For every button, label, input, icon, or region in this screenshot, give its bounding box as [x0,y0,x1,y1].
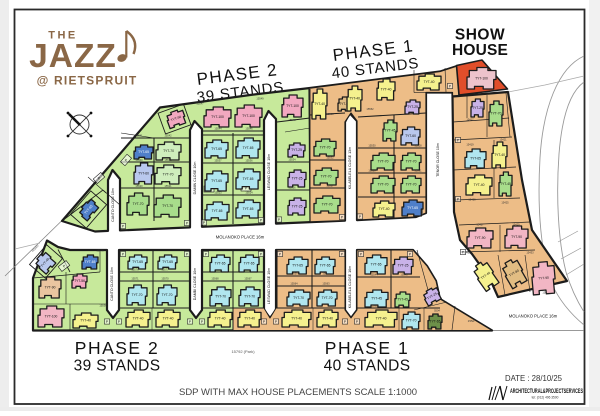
svg-text:TYT-40: TYT-40 [376,317,387,321]
svg-text:P: P [275,320,277,324]
svg-text:MOLANOKO PLACE 16m: MOLANOKO PLACE 16m [216,235,265,240]
svg-text:TYT-60: TYT-60 [138,172,149,176]
svg-text:KILABELELA CLOSE 16m: KILABELELA CLOSE 16m [348,266,352,308]
svg-text:TYT-25: TYT-25 [292,177,303,181]
svg-text:TYT-65: TYT-65 [138,150,149,154]
svg-text:15571: 15571 [131,277,139,281]
svg-text:TYT-65: TYT-65 [243,146,254,150]
svg-text:15567: 15567 [244,277,252,281]
svg-text:15548: 15548 [288,118,296,122]
svg-text:15530: 15530 [368,144,376,148]
svg-text:PHASE 2: PHASE 2 [75,338,159,358]
svg-text:15425: 15425 [501,201,509,205]
svg-text:P: P [203,221,205,225]
svg-text:P: P [359,215,361,219]
svg-text:MOLANOKO PLACE 16m: MOLANOKO PLACE 16m [509,314,558,319]
svg-text:TYT-40: TYT-40 [291,317,302,321]
svg-text:155d: 155d [468,319,475,323]
svg-text:15537: 15537 [214,159,222,163]
svg-text:TYT-65: TYT-65 [215,262,226,266]
svg-text:TYT-40: TYT-40 [314,102,325,106]
svg-text:15541: 15541 [135,134,143,138]
svg-text:DAMIN CLOSE 10m: DAMIN CLOSE 10m [193,162,197,195]
svg-text:15423: 15423 [468,198,476,202]
svg-text:TYT-60: TYT-60 [405,134,416,138]
svg-text:39 STANDS: 39 STANDS [74,358,161,375]
svg-text:TYT-70: TYT-70 [162,204,173,208]
svg-text:TYT-70: TYT-70 [491,112,502,116]
svg-text:TYT-25: TYT-25 [398,264,409,268]
svg-text:TYT-65: TYT-65 [85,260,96,264]
svg-text:TYT-25: TYT-25 [472,106,483,110]
svg-text:TYT-40: TYT-40 [163,317,174,321]
svg-text:TYT-40: TYT-40 [349,97,360,101]
svg-text:P: P [205,252,207,256]
svg-text:40 STANDS: 40 STANDS [324,358,411,375]
svg-text:15433: 15433 [526,251,534,255]
svg-text:5504: 5504 [434,309,440,313]
svg-text:TYT-65: TYT-65 [292,264,303,268]
svg-text:TYT-65: TYT-65 [320,264,331,268]
svg-text:TYT-25: TYT-25 [292,205,303,209]
svg-text:TYT-65: TYT-65 [244,262,255,266]
svg-text:TYT-70: TYT-70 [163,149,174,153]
svg-text:15417: 15417 [466,118,474,122]
svg-text:@ RIETSPRUIT: @ RIETSPRUIT [37,74,138,88]
svg-text:TYT-100: TYT-100 [242,114,255,118]
svg-text:TYT-40: TYT-40 [215,317,226,321]
svg-text:15534: 15534 [288,158,296,162]
svg-text:TYT-25: TYT-25 [291,148,302,152]
svg-text:P: P [344,320,346,324]
svg-text:TYT-45: TYT-45 [385,129,396,133]
svg-text:TYT-40: TYT-40 [133,317,144,321]
svg-text:P: P [457,197,459,201]
svg-text:P: P [279,252,281,256]
svg-text:15536: 15536 [99,304,107,308]
svg-text:P: P [449,84,451,88]
svg-text:TYT-65: TYT-65 [211,147,222,151]
svg-text:PHASE 1: PHASE 1 [325,338,409,358]
svg-text:TYT-65: TYT-65 [132,260,143,264]
svg-text:15564: 15564 [290,282,298,286]
svg-text:TYT-65: TYT-65 [430,320,441,324]
svg-text:JAZZ: JAZZ [29,38,117,75]
svg-text:TYT-40: TYT-40 [379,207,390,211]
svg-text:15547: 15547 [196,102,204,106]
svg-text:TYT-70: TYT-70 [133,202,144,206]
svg-text:TYT-65: TYT-65 [470,157,481,161]
svg-text:SDP WITH MAX HOUSE PLACEMENTS: SDP WITH MAX HOUSE PLACEMENTS SCALE 1:10… [179,387,417,397]
svg-text:TYT-70: TYT-70 [378,160,389,164]
svg-text:TYT-40: TYT-40 [494,153,505,157]
svg-text:P: P [189,320,191,324]
svg-text:ARCHITECTURAL&PROJECTSERVICES: ARCHITECTURAL&PROJECTSERVICES [510,388,583,395]
svg-text:15536: 15536 [245,159,253,163]
svg-text:TYT-65: TYT-65 [243,177,254,181]
svg-text:TYT-90: TYT-90 [511,235,522,239]
svg-text:TYT-40: TYT-40 [474,183,485,187]
svg-text:TYT-70: TYT-70 [378,183,389,187]
svg-text:TYT-70: TYT-70 [163,173,174,177]
svg-text:P: P [186,221,188,225]
svg-text:SHOW: SHOW [455,27,505,44]
svg-text:TYT-65: TYT-65 [407,206,418,210]
svg-text:TYT-45: TYT-45 [371,297,382,301]
svg-text:P: P [186,252,188,256]
svg-text:TYT-70: TYT-70 [162,293,173,297]
svg-text:TYT-100: TYT-100 [211,115,224,119]
svg-text:TYT-40: TYT-40 [244,317,255,321]
svg-text:P: P [201,320,203,324]
svg-text:P: P [356,320,358,324]
svg-text:P: P [118,320,120,324]
svg-text:TYT-70: TYT-70 [244,295,255,299]
svg-text:TYT-70: TYT-70 [293,296,304,300]
svg-text:15542: 15542 [164,134,172,138]
svg-text:P: P [122,252,124,256]
svg-text:tel: (012) 496 3500: tel: (012) 496 3500 [532,396,559,400]
svg-text:15578: 15578 [96,249,104,253]
svg-text:TYT-65: TYT-65 [162,260,173,264]
svg-text:15570: 15570 [161,277,169,281]
svg-text:P: P [341,252,343,256]
svg-text:P: P [278,218,280,222]
svg-text:15563: 15563 [322,282,330,286]
svg-text:TYT-70: TYT-70 [215,295,226,299]
svg-text:P: P [462,250,464,254]
svg-text:TENOR CLOSE 10m: TENOR CLOSE 10m [436,143,440,177]
svg-text:HOUSE: HOUSE [452,42,508,59]
svg-text:15524: 15524 [245,191,253,195]
svg-text:TYT-100: TYT-100 [45,315,58,319]
svg-text:P: P [106,320,108,324]
svg-text:P: P [263,320,265,324]
svg-text:P: P [122,224,124,228]
svg-text:15568: 15568 [211,277,219,281]
svg-text:KILABELELA CLOSE 13m: KILABELELA CLOSE 13m [348,147,352,189]
svg-text:LESWAD CLOSE 10m: LESWAD CLOSE 10m [267,154,271,190]
svg-text:15419: 15419 [466,143,474,147]
svg-text:15427: 15427 [476,223,484,227]
svg-text:TYT-56: TYT-56 [74,279,85,283]
svg-text:TYT-65: TYT-65 [243,207,254,211]
svg-text:15792 (Park): 15792 (Park) [231,349,255,354]
svg-text:TYT-100: TYT-100 [286,104,299,108]
svg-text:TYT-25: TYT-25 [407,105,418,109]
svg-text:P: P [260,252,262,256]
svg-text:TYT-70: TYT-70 [132,293,143,297]
svg-text:TYT-70: TYT-70 [406,319,417,323]
svg-text:TYT-100: TYT-100 [475,76,488,80]
svg-text:TYT-40: TYT-40 [322,317,333,321]
svg-text:TYT-65: TYT-65 [211,179,222,183]
svg-text:TYT-70: TYT-70 [322,203,333,207]
svg-text:TYT-70: TYT-70 [322,296,333,300]
svg-text:TYT-90: TYT-90 [475,236,486,240]
svg-text:TYT-40: TYT-40 [381,88,392,92]
svg-text:TYT-45: TYT-45 [500,182,511,186]
svg-text:LESWAD CLOSE 10m: LESWAD CLOSE 10m [267,268,271,304]
svg-text:TYT-70: TYT-70 [406,183,417,187]
svg-text:TYT-65: TYT-65 [371,263,382,267]
svg-text:TYT-45: TYT-45 [397,298,408,302]
svg-text:P: P [341,215,343,219]
svg-text:15549: 15549 [256,97,264,101]
svg-text:15552: 15552 [366,107,374,111]
svg-text:DATE : 28/10/25: DATE : 28/10/25 [505,374,562,383]
svg-text:TYT-90: TYT-90 [45,286,56,290]
svg-text:15421: 15421 [499,138,507,142]
svg-text:P: P [457,138,459,142]
svg-text:TYT-40: TYT-40 [424,80,435,84]
svg-text:P: P [409,252,411,256]
svg-text:CANTO CLOSE 10m: CANTO CLOSE 10m [111,188,115,222]
svg-text:TYT-40: TYT-40 [80,319,91,323]
svg-text:P: P [360,252,362,256]
svg-text:P: P [260,218,262,222]
svg-text:DAMBI CLOSE 10m: DAMBI CLOSE 10m [193,268,197,301]
svg-text:TYT-70: TYT-70 [321,175,332,179]
svg-text:CANTO CLOSE 10m: CANTO CLOSE 10m [110,267,114,301]
svg-text:TYT-70: TYT-70 [320,146,331,150]
svg-text:TYT-70: TYT-70 [406,160,417,164]
svg-text:15550: 15550 [326,112,334,116]
svg-text:TYT-65: TYT-65 [212,209,223,213]
